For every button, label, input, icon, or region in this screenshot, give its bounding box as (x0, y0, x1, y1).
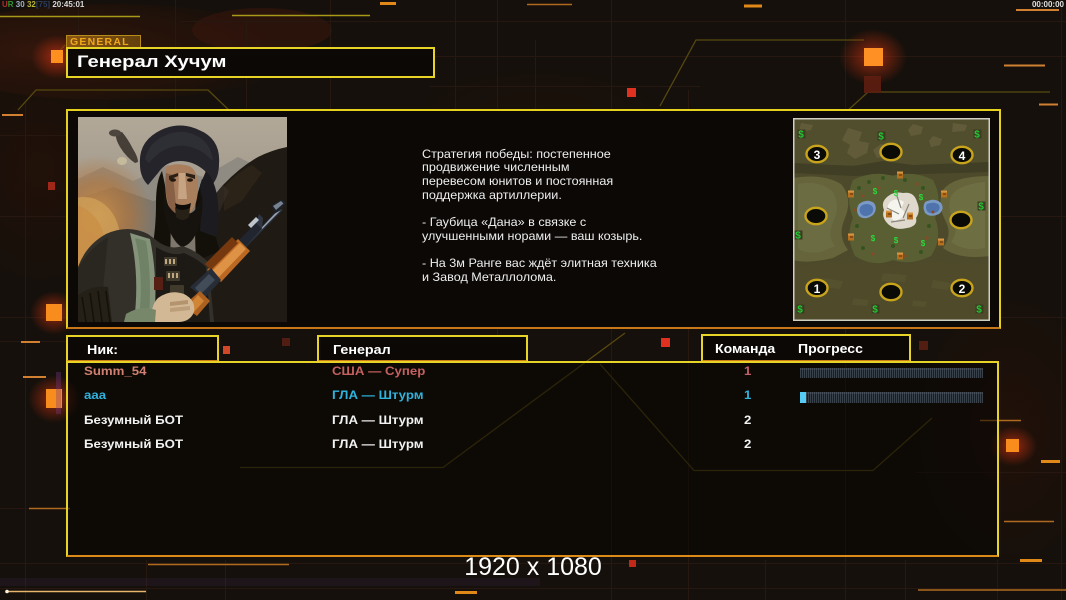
svg-text:$: $ (921, 239, 926, 248)
svg-text:4: 4 (959, 149, 966, 163)
svg-text:1: 1 (814, 282, 821, 296)
svg-text:3: 3 (814, 148, 821, 162)
svg-text:$: $ (873, 187, 878, 196)
svg-text:$: $ (871, 234, 876, 243)
svg-text:$: $ (894, 189, 899, 198)
svg-text:2: 2 (959, 282, 966, 296)
svg-text:$: $ (894, 236, 899, 245)
svg-text:$: $ (919, 193, 924, 202)
